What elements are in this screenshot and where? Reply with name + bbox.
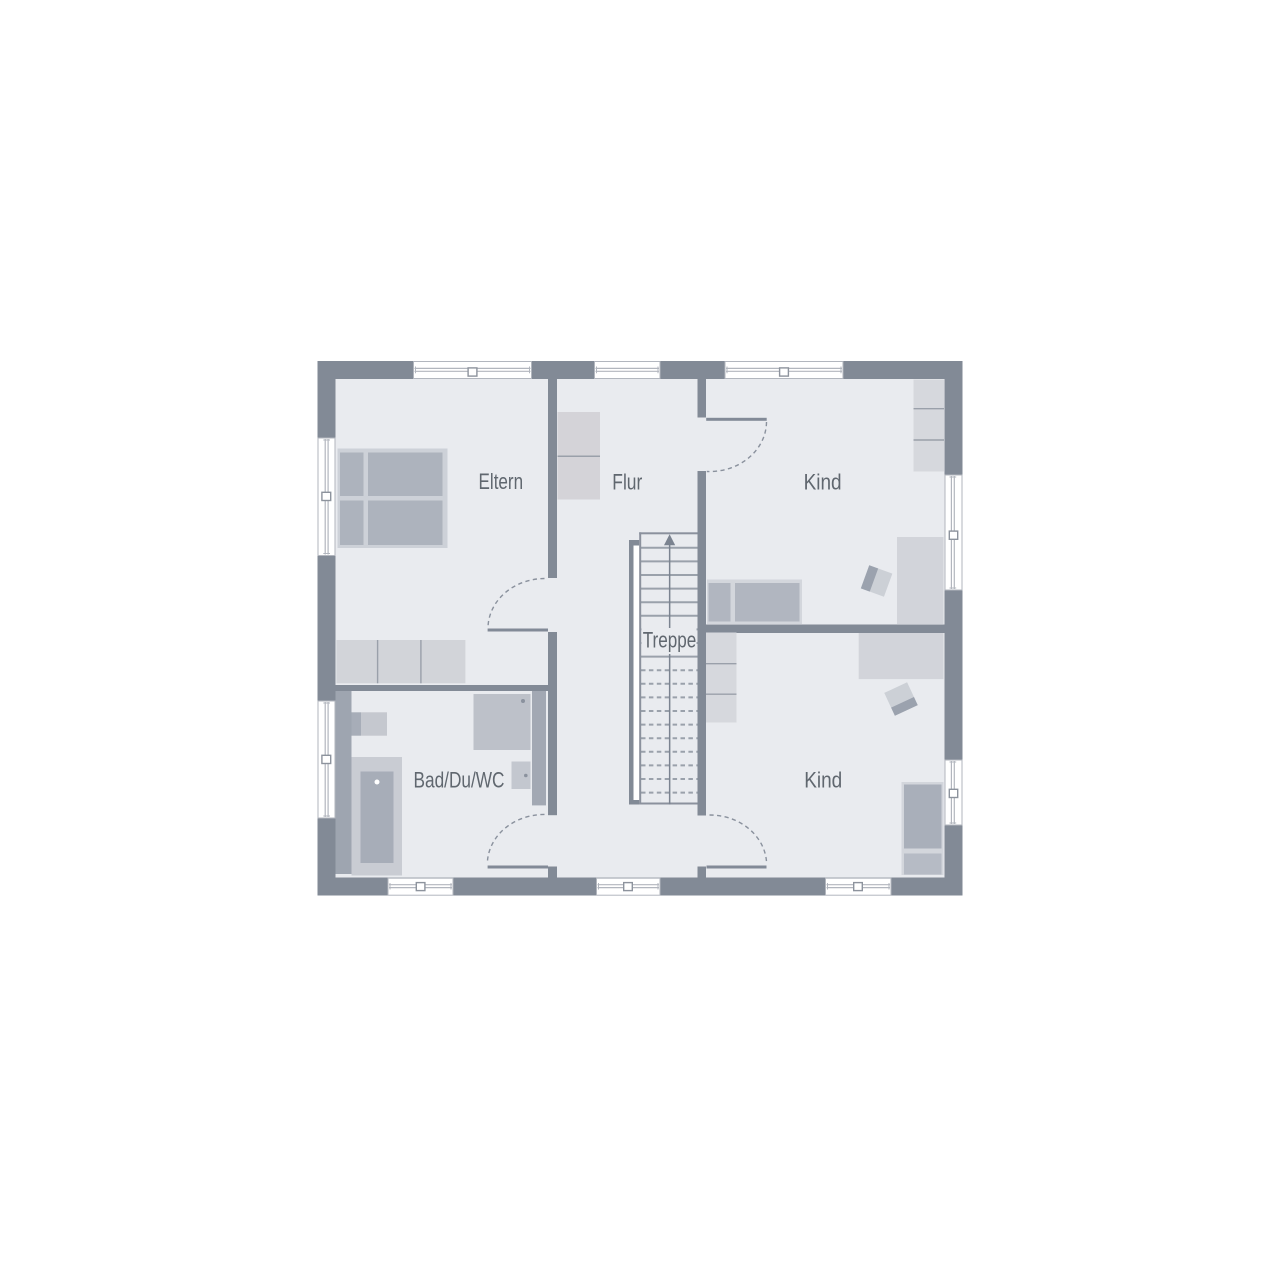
svg-text:Kind: Kind — [804, 469, 842, 494]
svg-text:Treppe: Treppe — [643, 627, 697, 652]
svg-text:Kind: Kind — [804, 768, 842, 793]
svg-text:Bad/Du/WC: Bad/Du/WC — [414, 768, 505, 793]
svg-text:Eltern: Eltern — [479, 469, 524, 494]
svg-text:Flur: Flur — [612, 469, 642, 494]
